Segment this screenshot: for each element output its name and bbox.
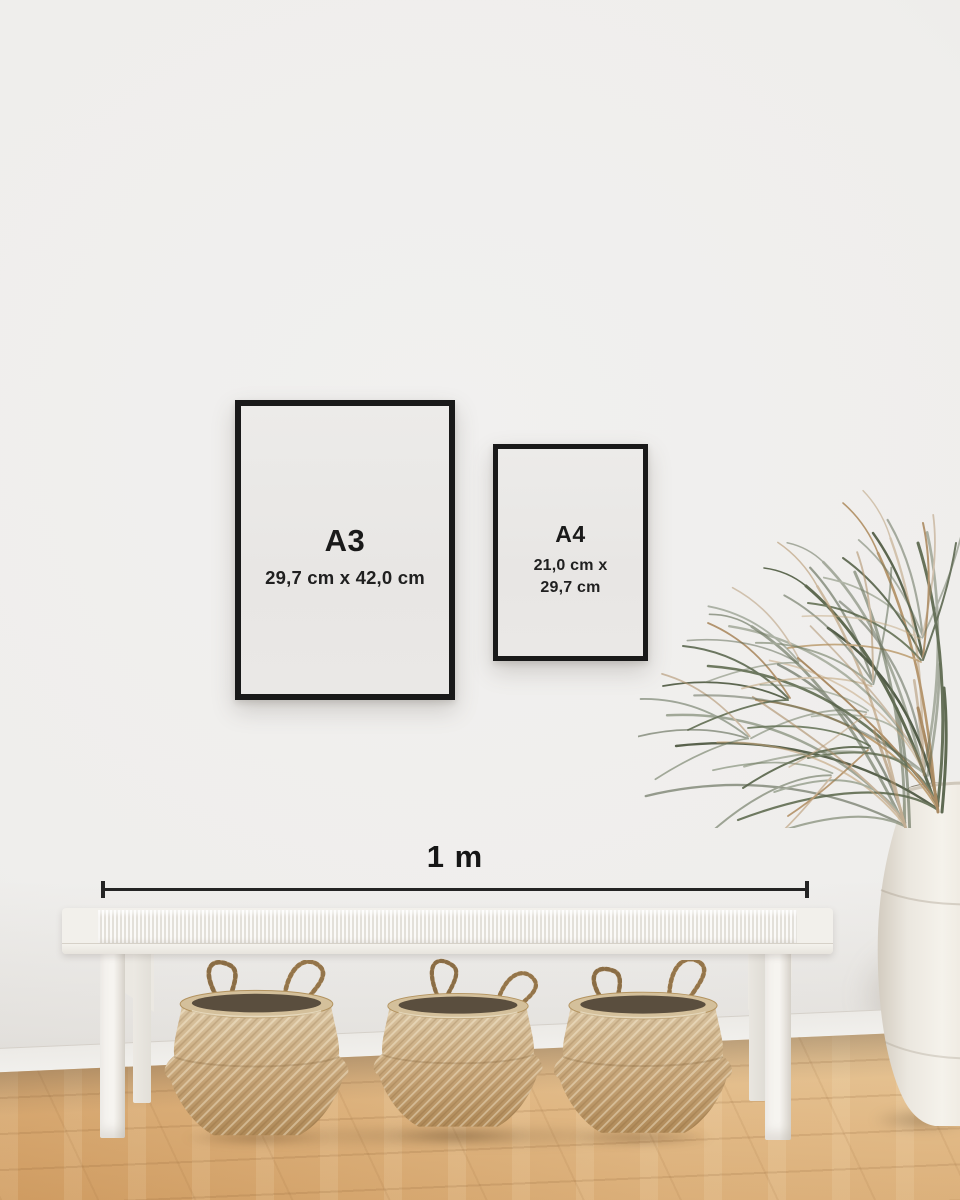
basket-right (548, 960, 738, 1146)
poster-frame-a3: A3 29,7 cm x 42,0 cm (235, 400, 455, 700)
poster-dimensions-a4-line2: 29,7 cm (534, 577, 608, 599)
scale-tick-left (101, 881, 105, 898)
poster-size-label-a4: A4 (555, 523, 585, 546)
poster-paper-a4: A4 21,0 cm x 29,7 cm (498, 449, 643, 656)
poster-size-label-a3: A3 (325, 525, 366, 556)
bench-seat-rail (62, 943, 833, 954)
plant-fronds (663, 503, 956, 820)
basket-middle (368, 956, 548, 1146)
bench-leg-front-left (100, 950, 125, 1138)
poster-dimensions-a3: 29,7 cm x 42,0 cm (265, 567, 425, 589)
scale-label: 1 m (390, 839, 520, 875)
bench-leg-rear-left (133, 950, 151, 1103)
bench-seat (62, 908, 833, 954)
plant (638, 328, 960, 828)
vase-body (878, 780, 960, 1126)
scale-line (103, 888, 809, 891)
bench-leg-front-right (765, 950, 791, 1140)
vase (865, 780, 960, 1134)
scale-tick-right (805, 881, 809, 898)
poster-paper-a3: A3 29,7 cm x 42,0 cm (241, 406, 449, 694)
poster-frame-a4: A4 21,0 cm x 29,7 cm (493, 444, 648, 661)
bench-seat-weave (98, 910, 797, 944)
room-scene: A3 29,7 cm x 42,0 cm A4 21,0 cm x 29,7 c… (0, 0, 960, 1200)
bench-leg-rear-right (749, 950, 766, 1101)
poster-dimensions-a4-line1: 21,0 cm x (534, 555, 608, 577)
poster-dimensions-a4: 21,0 cm x 29,7 cm (534, 555, 608, 598)
basket-left (158, 960, 355, 1146)
